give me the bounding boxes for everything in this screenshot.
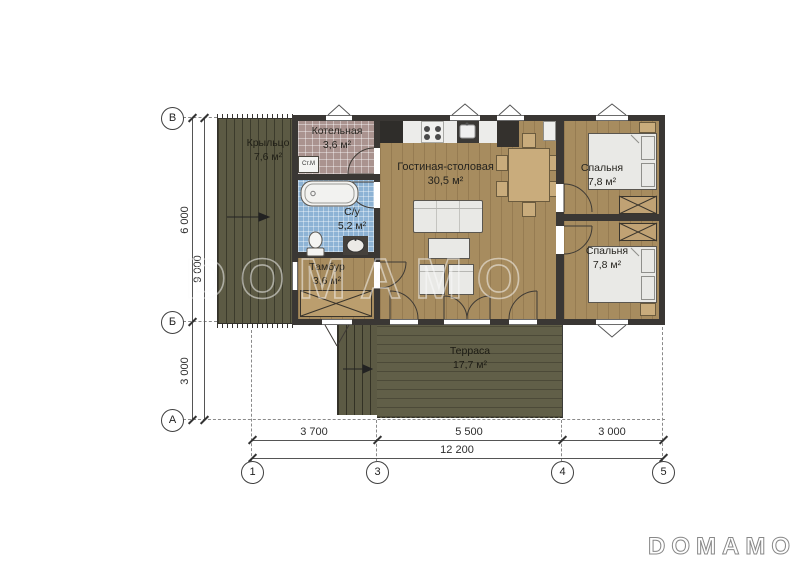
dim-label-bottom-5500: 5 500 [439, 426, 499, 438]
door-gap-tambour-living [374, 262, 380, 288]
room-label-tambour: Тамбур 3,6 м² [289, 261, 365, 288]
room-name: Крыльцо [230, 137, 306, 151]
dim-label-bottom-3000: 3 000 [582, 426, 642, 438]
axis-line-b [183, 321, 217, 322]
floor-plan-canvas: Ст.М [0, 0, 800, 566]
door-gap-bedroom2 [556, 226, 564, 254]
dim-tick [188, 415, 197, 424]
terrace-steps [337, 325, 377, 415]
dim-label-left-9000: 9 000 [192, 239, 204, 299]
room-area: 5,2 м² [314, 220, 390, 234]
room-area: 30,5 м² [368, 174, 523, 188]
window-bedroom1 [596, 115, 628, 121]
dim-label-bottom-12200: 12 200 [427, 444, 487, 456]
room-name: Спальня [569, 245, 645, 259]
room-name: Терраса [420, 345, 520, 359]
room-name: С/у [314, 206, 390, 220]
door-gap-bedroom1 [556, 184, 564, 212]
dim-line-bottom-total [252, 458, 663, 459]
door-living-terrace-2 [509, 319, 537, 325]
room-area: 3,6 м² [289, 275, 365, 289]
wall-living-bedrooms [556, 121, 564, 319]
room-area: 7,6 м² [230, 151, 306, 165]
room-area: 7,8 м² [564, 176, 640, 190]
dim-tick [659, 435, 668, 444]
room-label-porch: Крыльцо 7,6 м² [230, 137, 306, 164]
room-area: 3,6 м² [299, 139, 375, 153]
axis-line-a [183, 419, 665, 420]
room-name: Котельная [299, 125, 375, 139]
wall-bedroom-divider [564, 214, 659, 221]
room-label-bedroom2: Спальня 7,8 м² [569, 245, 645, 272]
dim-label-bottom-3700: 3 700 [284, 426, 344, 438]
room-area: 7,8 м² [569, 259, 645, 273]
dim-tick [200, 415, 209, 424]
axis-circle-b: Б [161, 311, 184, 334]
room-label-bathroom: С/у 5,2 м² [314, 206, 390, 233]
door-living-terrace-1 [390, 319, 418, 325]
axis-line-v [183, 117, 217, 118]
window-bedroom2 [596, 319, 628, 325]
dim-line-bottom-segments [252, 440, 663, 441]
window-boiler [326, 115, 352, 121]
room-area: 17,7 м² [420, 359, 520, 373]
room-name: Спальня [564, 162, 640, 176]
room-name: Тамбур [289, 261, 365, 275]
room-label-boiler: Котельная 3,6 м² [299, 125, 375, 152]
room-name: Гостиная-столовая [368, 160, 523, 174]
porch-edge-hatch-bottom [217, 324, 293, 328]
dim-line-left-total [204, 118, 205, 420]
window-kitchen [450, 115, 480, 121]
axis-circle-5: 5 [652, 461, 675, 484]
door-living-terrace-double [444, 319, 490, 325]
brand-logo: DOMAMO [648, 533, 796, 561]
axis-circle-3: 3 [366, 461, 389, 484]
room-label-terrace: Терраса 17,7 м² [420, 345, 520, 372]
wall-boiler-bath [298, 174, 374, 180]
room-label-living: Гостиная-столовая 30,5 м² [368, 160, 523, 189]
axis-circle-4: 4 [551, 461, 574, 484]
axis-circle-a: А [161, 409, 184, 432]
wall-bath-tambour [298, 252, 374, 258]
dim-label-left-3000: 3 000 [179, 341, 191, 401]
axis-circle-v: В [161, 107, 184, 130]
axis-circle-1: 1 [241, 461, 264, 484]
dim-label-left-6000: 6 000 [179, 190, 191, 250]
window-living-top [497, 115, 524, 121]
door-tambour-exterior [322, 319, 352, 325]
room-label-bedroom1: Спальня 7,8 м² [564, 162, 640, 189]
